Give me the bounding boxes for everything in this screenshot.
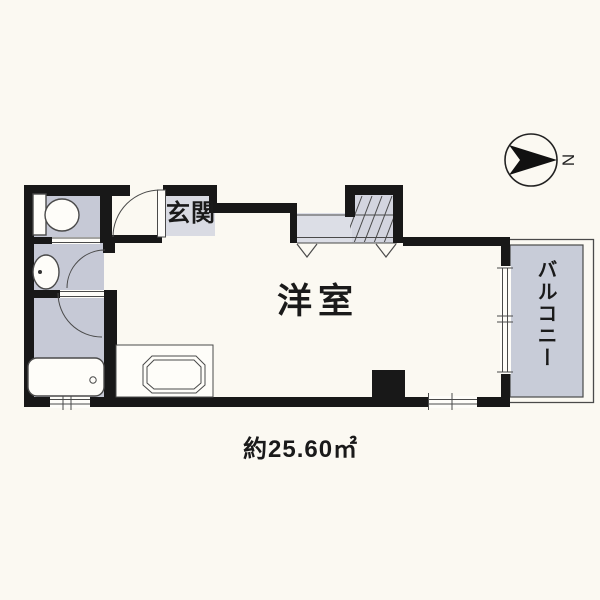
floorplan: N 玄関 洋室 バルコニー 約25.60㎡	[0, 0, 600, 600]
washbasin-icon	[33, 255, 59, 289]
wall-washroom-right-stub	[103, 243, 115, 253]
wall-right-upper	[501, 237, 510, 268]
floor-area-label: 約25.60㎡	[243, 438, 358, 462]
wall-top-entrance	[163, 185, 217, 196]
pillar	[372, 370, 405, 398]
closet-door-chevron-icon	[376, 244, 396, 257]
compass-icon: N	[505, 134, 578, 186]
wall-top-mid	[209, 203, 297, 213]
wall-step	[290, 213, 297, 243]
wall-bath-divider	[24, 290, 60, 298]
entrance-door-leaf	[158, 190, 166, 237]
bathtub-icon	[28, 358, 104, 396]
wall-top-right	[403, 237, 510, 246]
closet-door-chevron-icon	[297, 244, 317, 257]
entrance-door-swing	[113, 190, 160, 237]
wall-entrance-inner	[100, 235, 162, 243]
wall-bottom	[90, 397, 428, 407]
window-right-wall	[497, 266, 513, 374]
wall-closet-right	[393, 185, 403, 243]
wall-toilet-divider	[24, 237, 52, 244]
kitchen-sink-icon	[116, 345, 213, 397]
wall-bottom	[24, 397, 50, 407]
compass-north-label: N	[559, 154, 578, 166]
wall-toilet-right	[100, 185, 112, 237]
main-room-label: 洋室	[277, 284, 359, 319]
wall-right-lower	[501, 372, 510, 407]
balcony-label: バルコニー	[535, 259, 555, 369]
wall-bathroom-right	[104, 290, 117, 407]
window-bottom-wall	[428, 393, 477, 410]
entrance-label: 玄関	[166, 202, 216, 226]
